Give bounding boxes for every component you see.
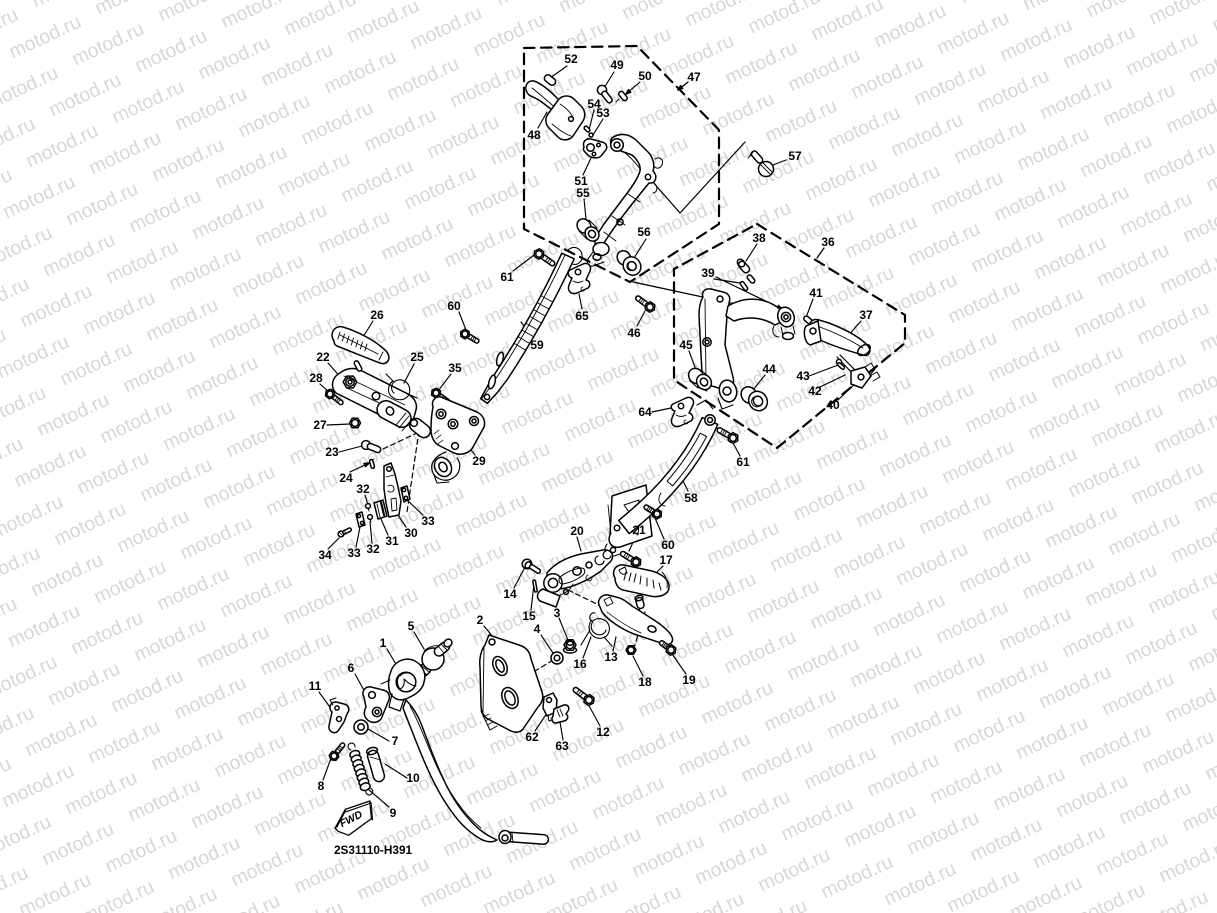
svg-text:61: 61 bbox=[500, 270, 514, 284]
svg-text:2S31110-H391: 2S31110-H391 bbox=[334, 843, 413, 857]
svg-text:59: 59 bbox=[530, 338, 544, 352]
svg-text:44: 44 bbox=[762, 362, 776, 376]
svg-text:6: 6 bbox=[348, 661, 355, 675]
svg-text:56: 56 bbox=[637, 225, 651, 239]
svg-text:33: 33 bbox=[347, 546, 361, 560]
svg-text:27: 27 bbox=[313, 418, 327, 432]
svg-text:18: 18 bbox=[638, 675, 652, 689]
svg-text:28: 28 bbox=[309, 371, 323, 385]
svg-text:20: 20 bbox=[570, 524, 584, 538]
svg-text:10: 10 bbox=[406, 771, 420, 785]
svg-text:62: 62 bbox=[525, 730, 539, 744]
svg-text:19: 19 bbox=[682, 673, 696, 687]
svg-text:9: 9 bbox=[390, 806, 397, 820]
svg-text:38: 38 bbox=[752, 231, 766, 245]
svg-text:5: 5 bbox=[408, 619, 415, 633]
svg-text:33: 33 bbox=[421, 514, 435, 528]
svg-text:3: 3 bbox=[554, 606, 561, 620]
svg-text:11: 11 bbox=[309, 679, 322, 693]
svg-text:12: 12 bbox=[596, 725, 610, 739]
svg-text:32: 32 bbox=[356, 482, 370, 496]
svg-text:61: 61 bbox=[736, 455, 750, 469]
svg-text:2: 2 bbox=[477, 613, 484, 627]
svg-text:30: 30 bbox=[404, 526, 418, 540]
svg-text:13: 13 bbox=[604, 650, 618, 664]
svg-text:4: 4 bbox=[534, 622, 541, 636]
svg-text:26: 26 bbox=[370, 308, 384, 322]
svg-text:55: 55 bbox=[576, 186, 590, 200]
svg-text:40: 40 bbox=[826, 398, 840, 412]
svg-text:32: 32 bbox=[366, 542, 380, 556]
svg-text:37: 37 bbox=[859, 308, 873, 322]
svg-text:21: 21 bbox=[632, 523, 646, 537]
svg-text:64: 64 bbox=[638, 405, 652, 419]
svg-text:23: 23 bbox=[325, 445, 339, 459]
svg-text:17: 17 bbox=[659, 553, 673, 567]
svg-text:31: 31 bbox=[385, 534, 399, 548]
svg-text:48: 48 bbox=[527, 128, 541, 142]
svg-text:60: 60 bbox=[447, 299, 461, 313]
svg-text:42: 42 bbox=[808, 384, 822, 398]
svg-text:36: 36 bbox=[821, 235, 835, 249]
svg-text:60: 60 bbox=[661, 538, 675, 552]
svg-text:65: 65 bbox=[575, 309, 589, 323]
svg-text:7: 7 bbox=[392, 734, 399, 748]
svg-text:1: 1 bbox=[380, 636, 387, 650]
svg-text:57: 57 bbox=[788, 149, 802, 163]
svg-text:16: 16 bbox=[573, 657, 587, 671]
svg-text:49: 49 bbox=[610, 58, 624, 72]
svg-text:24: 24 bbox=[339, 471, 353, 485]
svg-text:35: 35 bbox=[448, 361, 462, 375]
svg-text:46: 46 bbox=[627, 326, 641, 340]
svg-text:53: 53 bbox=[596, 106, 610, 120]
svg-text:50: 50 bbox=[638, 69, 652, 83]
svg-text:52: 52 bbox=[564, 52, 578, 66]
svg-text:39: 39 bbox=[701, 266, 715, 280]
svg-text:47: 47 bbox=[687, 70, 701, 84]
svg-text:8: 8 bbox=[318, 779, 325, 793]
svg-text:25: 25 bbox=[410, 350, 424, 364]
svg-text:14: 14 bbox=[503, 587, 517, 601]
svg-text:63: 63 bbox=[555, 739, 569, 753]
svg-text:41: 41 bbox=[809, 286, 823, 300]
svg-text:43: 43 bbox=[796, 369, 810, 383]
svg-text:45: 45 bbox=[679, 338, 693, 352]
svg-text:58: 58 bbox=[684, 491, 698, 505]
svg-text:15: 15 bbox=[522, 609, 536, 623]
svg-text:29: 29 bbox=[472, 454, 486, 468]
svg-text:22: 22 bbox=[316, 350, 330, 364]
svg-text:34: 34 bbox=[318, 548, 332, 562]
